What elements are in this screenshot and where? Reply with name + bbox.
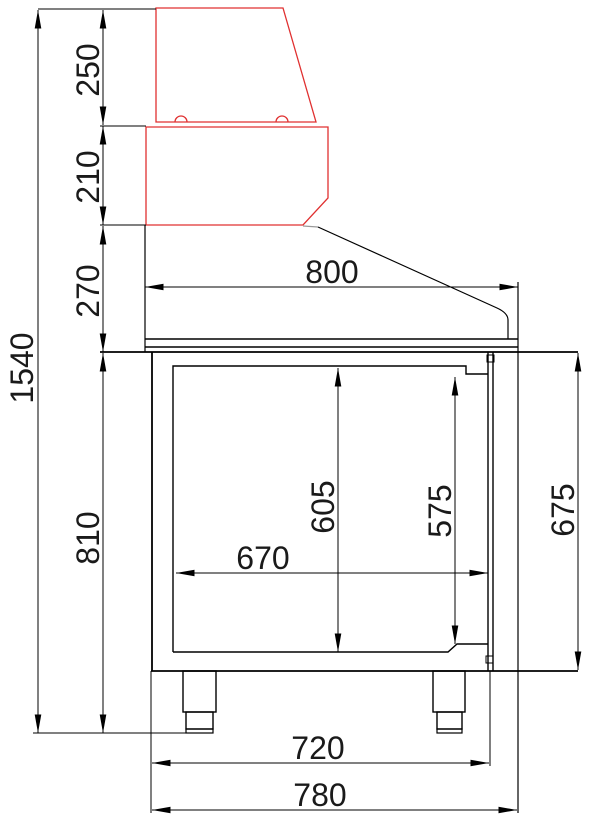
dim-interior-height: 605	[305, 368, 341, 652]
dim-glass-base-height: 210	[70, 126, 106, 225]
glass-display-base-outline	[146, 127, 328, 225]
dim-label-total-height: 1540	[4, 332, 40, 403]
dim-label-body-depth: 720	[291, 730, 344, 766]
technical-drawing-page: 1540 250 210 270 810 800 605 575 675 670	[0, 0, 605, 829]
dim-label-body-side-height: 675	[545, 483, 581, 536]
door-bottom-hinge	[486, 656, 493, 663]
dim-label-glass-base-height: 210	[70, 150, 106, 203]
dim-worktop-depth: 800	[145, 254, 518, 290]
dim-label-body-with-legs-height: 810	[70, 511, 106, 564]
dim-door-opening-height: 575	[422, 377, 458, 644]
dim-label-total-depth: 780	[293, 777, 346, 813]
dim-body-side-height: 675	[545, 353, 581, 670]
door-outline	[486, 282, 518, 813]
dim-glass-top-height: 250	[70, 10, 106, 125]
dim-worktop-section-height: 270	[70, 226, 106, 352]
dim-label-glass-top-height: 250	[70, 43, 106, 96]
rear-leg	[433, 671, 465, 733]
dim-label-worktop-depth: 800	[305, 254, 358, 290]
dim-label-worktop-section-height: 270	[70, 264, 106, 317]
technical-drawing: 1540 250 210 270 810 800 605 575 675 670	[0, 0, 605, 829]
dim-body-with-legs-height: 810	[70, 353, 106, 733]
glass-display-top-outline	[156, 8, 316, 122]
dim-label-interior-height: 605	[305, 480, 341, 533]
front-leg	[183, 671, 216, 733]
dim-label-interior-depth: 670	[236, 540, 289, 576]
extension-lines	[38, 9, 490, 813]
dim-body-depth: 720	[152, 730, 489, 766]
dim-label-door-opening-height: 575	[422, 484, 458, 537]
dim-interior-depth: 670	[176, 540, 488, 576]
dim-total-height: 1540	[4, 10, 40, 733]
dim-total-depth: 780	[152, 777, 517, 813]
